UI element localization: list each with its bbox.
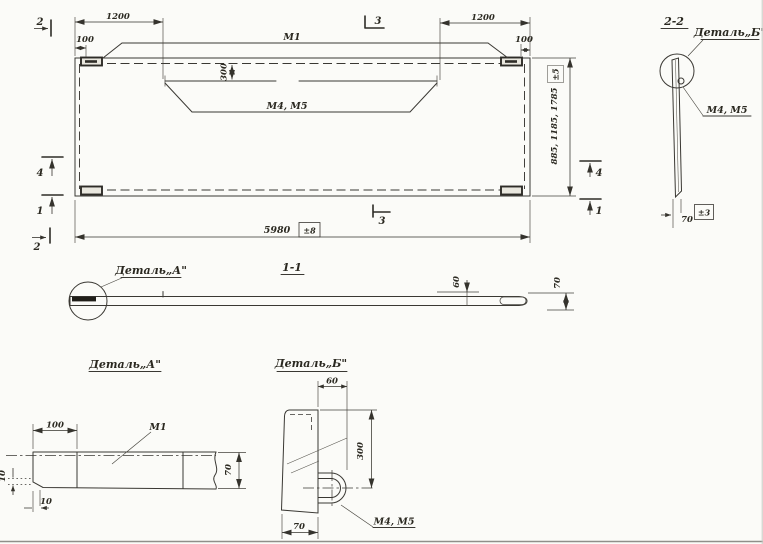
detail-b-circle (660, 54, 694, 88)
label-m4m5: М4, М5 (266, 101, 308, 112)
label-m4m5: М4, М5 (706, 105, 748, 116)
section-2-2-title: 2-2 (663, 15, 684, 28)
dim-100: 100 (46, 421, 64, 431)
bar-outline (33, 452, 216, 489)
ext-lines-10 (33, 490, 40, 512)
mark-3-bottom: 3 (379, 216, 386, 227)
detail-b-title: Деталь„Б" (274, 357, 347, 370)
section-mark-4-left: 4 (37, 157, 63, 179)
section-1-1-title: 1-1 (282, 261, 302, 274)
detail-a-leader (101, 277, 124, 287)
section-2-2-view: 2-2 Деталь„Б" М4, М5 70 ±3 (660, 15, 763, 228)
dim-70: 70 (553, 277, 563, 289)
tol-70: ±3 (698, 208, 711, 218)
dim-60: 60 (452, 276, 462, 288)
dim-300: 300 (220, 63, 230, 81)
tol-heights: ±5 (551, 68, 561, 81)
section-mark-2-top: 2 (34, 17, 51, 36)
section-mark-4-right: 4 (580, 161, 603, 179)
mark-4-right: 4 (596, 168, 603, 179)
tol-length: ±8 (303, 226, 316, 236)
plate-outline (282, 410, 319, 513)
ext-lines-left (75, 17, 163, 79)
m1-leader (112, 432, 151, 464)
detail-b-callout: Деталь„Б" (693, 26, 763, 39)
dim-70: 70 (224, 464, 234, 476)
ext-lines-70 (528, 293, 574, 310)
dim-10-side: 10 (0, 470, 8, 482)
panel-outline (75, 58, 530, 196)
break-line (214, 452, 217, 489)
detail-a-callout: Деталь„А" (114, 264, 187, 277)
section-mark-1-right: 1 (580, 199, 602, 217)
dim-70: 70 (681, 215, 693, 225)
tip-projection-lines (8, 479, 33, 485)
detail-b-view: Деталь„Б" 60 300 70 М4, М5 (274, 357, 415, 539)
corner-bracket-bottom-right (501, 187, 522, 195)
dim-300: 300 (356, 442, 366, 460)
dim-100-right: 100 (515, 35, 533, 45)
dim-10-bottom: 10 (40, 497, 52, 507)
dim-length: 5980 (264, 225, 291, 236)
surface-lines (287, 438, 347, 473)
mark-2-top: 2 (36, 17, 44, 28)
ext-lines-60 (437, 292, 479, 306)
plank-profile (70, 297, 527, 306)
technical-drawing: М1 М4, М5 300 1200 100 1200 100 2 (0, 0, 763, 544)
dim-100-left: 100 (76, 35, 94, 45)
dim-heights: 885, 1185, 1785 (550, 87, 560, 164)
ext-lines-right (440, 17, 530, 80)
hidden-contour (290, 415, 312, 433)
main-plan-view: М1 М4, М5 300 1200 100 1200 100 2 (32, 12, 603, 253)
label-m1: М1 (282, 32, 300, 43)
section-mark-3-top: 3 (365, 16, 384, 28)
m1-strip-outline (103, 43, 508, 58)
dim-1200-right: 1200 (471, 13, 495, 23)
ext-lines-70 (673, 199, 681, 228)
m4m5-leader (683, 87, 703, 116)
dim-70: 70 (293, 522, 305, 532)
label-m1: М1 (148, 422, 166, 433)
mark-3-top: 3 (375, 16, 382, 27)
loop-hidden-profile (500, 297, 526, 305)
section-mark-2-bottom: 2 (32, 228, 50, 253)
m1-strip-section (72, 297, 96, 302)
section-mark-1-left: 1 (37, 195, 63, 217)
plank-edge-profile (672, 58, 682, 197)
mark-2-bottom: 2 (33, 242, 41, 253)
blueprint-page: М1 М4, М5 300 1200 100 1200 100 2 (0, 0, 763, 544)
ext-lines-length (75, 200, 530, 243)
section-1-1-view: 1-1 Деталь„А" 60 70 (69, 261, 574, 320)
inner-edges (77, 452, 183, 489)
mark-1-right: 1 (596, 206, 603, 217)
dim-60: 60 (326, 377, 338, 387)
detail-a-title: Деталь„А" (88, 358, 161, 371)
mark-4-left: 4 (37, 168, 44, 179)
ext-lines-60 (318, 381, 347, 470)
section-mark-3-bottom: 3 (373, 205, 390, 227)
m4m5-leader (341, 505, 373, 527)
detail-b-leader (688, 40, 703, 56)
label-m4m5: М4, М5 (373, 517, 415, 528)
corner-bracket-bottom-left (81, 187, 102, 195)
dim-1200-left: 1200 (106, 12, 130, 22)
mark-1-left: 1 (37, 206, 44, 217)
detail-a-view: Деталь„А" 100 М1 70 10 10 (0, 358, 246, 512)
